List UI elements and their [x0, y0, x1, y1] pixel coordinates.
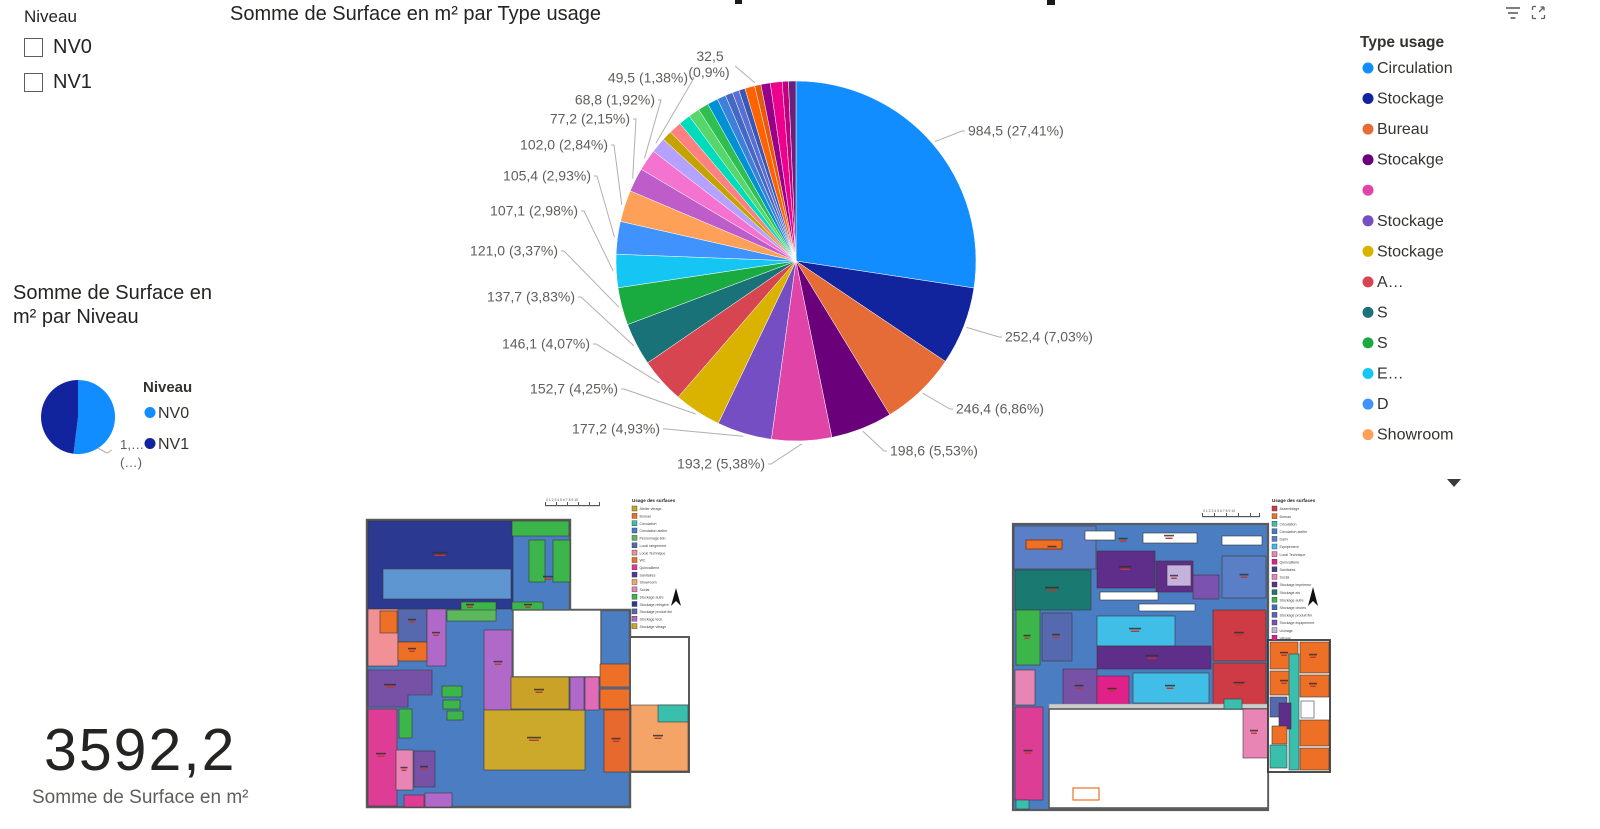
svg-text:Circulation atelier: Circulation atelier — [1280, 530, 1309, 534]
svg-text:Usinage: Usinage — [1280, 629, 1293, 633]
svg-text:Niveau: Niveau — [143, 379, 192, 396]
svg-text:105,4 (2,93%): 105,4 (2,93%) — [503, 168, 591, 184]
svg-text:Bureau: Bureau — [1377, 121, 1429, 138]
svg-text:246,4 (6,86%): 246,4 (6,86%) — [956, 401, 1044, 417]
svg-text:Stockage produit fini: Stockage produit fini — [1280, 614, 1313, 618]
svg-text:Social: Social — [640, 588, 650, 592]
svg-text:Showroom: Showroom — [1377, 427, 1453, 444]
svg-text:984,5 (27,41%): 984,5 (27,41%) — [968, 123, 1064, 139]
svg-text:32,5: 32,5 — [696, 48, 723, 64]
svg-text:193,2 (5,38%): 193,2 (5,38%) — [677, 456, 765, 472]
svg-text:Daim: Daim — [1280, 538, 1288, 542]
svg-text:Stockage: Stockage — [1377, 91, 1444, 108]
svg-text:WC: WC — [640, 559, 646, 563]
svg-text:137,7 (3,83%): 137,7 (3,83%) — [487, 289, 575, 305]
svg-text:177,2 (4,93%): 177,2 (4,93%) — [572, 421, 660, 437]
svg-text:Usage des surfaces: Usage des surfaces — [632, 498, 676, 503]
svg-text:121,0 (3,37%): 121,0 (3,37%) — [470, 243, 558, 259]
svg-text:252,4 (7,03%): 252,4 (7,03%) — [1005, 329, 1093, 345]
svg-text:Stockage: Stockage — [1377, 213, 1444, 230]
svg-text:Stockage chutes: Stockage chutes — [1280, 606, 1307, 610]
svg-text:(0,9%): (0,9%) — [688, 64, 729, 80]
svg-text:Showroom: Showroom — [640, 581, 657, 585]
svg-text:Type usage: Type usage — [1360, 34, 1445, 51]
svg-text:102,0 (2,84%): 102,0 (2,84%) — [520, 137, 608, 153]
svg-text:S: S — [1377, 304, 1388, 321]
svg-text:Stockage vitrage: Stockage vitrage — [640, 625, 667, 629]
svg-text:0 1 2 3 4 5 6 7 8 9: 0 1 2 3 4 5 6 7 8 9 10 — [546, 498, 578, 502]
svg-text:152,7 (4,25%): 152,7 (4,25%) — [530, 381, 618, 397]
svg-text:Bureau: Bureau — [1280, 515, 1292, 519]
svg-text:Sanitaires: Sanitaires — [1280, 568, 1296, 572]
svg-text:S: S — [1377, 335, 1388, 352]
svg-text:0 1 2 3 4 5 6 7 8 9: 0 1 2 3 4 5 6 7 8 9 10 — [1203, 509, 1235, 513]
svg-text:Quincaillerie: Quincaillerie — [640, 566, 660, 570]
svg-text:Stockage réfrigéré: Stockage réfrigéré — [640, 603, 669, 607]
svg-text:Equipement: Equipement — [1280, 545, 1299, 549]
svg-text:Social: Social — [1280, 576, 1290, 580]
svg-text:E…: E… — [1377, 366, 1404, 383]
svg-text:Bureau: Bureau — [640, 515, 652, 519]
svg-text:Assemblage: Assemblage — [1280, 507, 1300, 511]
svg-text:107,1 (2,98%): 107,1 (2,98%) — [490, 203, 578, 219]
svg-text:Personnage lidn: Personnage lidn — [640, 537, 666, 541]
svg-text:Vitrage: Vitrage — [1280, 636, 1291, 640]
svg-text:Stockage imprimeur: Stockage imprimeur — [1280, 583, 1313, 587]
svg-text:Atelier vitrage: Atelier vitrage — [640, 507, 662, 511]
svg-text:Local Technique: Local Technique — [640, 551, 666, 555]
svg-text:Stockage: Stockage — [1377, 243, 1444, 260]
svg-text:Stockage autre: Stockage autre — [1280, 598, 1304, 602]
svg-text:Usage des surfaces: Usage des surfaces — [1272, 498, 1316, 503]
svg-text:Quincaillerie: Quincaillerie — [1280, 560, 1300, 564]
svg-text:Stockage produit fini: Stockage produit fini — [640, 610, 673, 614]
svg-text:198,6 (5,53%): 198,6 (5,53%) — [890, 443, 978, 459]
svg-text:Local rangement: Local rangement — [640, 544, 667, 548]
svg-text:D: D — [1377, 396, 1389, 413]
svg-text:Stockage tech.: Stockage tech. — [640, 618, 664, 622]
svg-text:Stocakge: Stocakge — [1377, 152, 1444, 169]
svg-text:1,…: 1,… — [120, 437, 144, 452]
svg-text:Circulation: Circulation — [1377, 60, 1453, 77]
svg-text:A…: A… — [1377, 274, 1404, 291]
svg-text:NV1: NV1 — [158, 436, 189, 453]
svg-text:146,1 (4,07%): 146,1 (4,07%) — [502, 336, 590, 352]
svg-text:49,5 (1,38%): 49,5 (1,38%) — [608, 70, 688, 86]
svg-text:77,2 (2,15%): 77,2 (2,15%) — [550, 111, 630, 127]
svg-text:Circulation atelier: Circulation atelier — [640, 529, 669, 533]
svg-text:Local Technique: Local Technique — [1280, 553, 1306, 557]
svg-text:Circulation: Circulation — [1280, 522, 1297, 526]
svg-text:Stockage équipement: Stockage équipement — [1280, 621, 1315, 625]
svg-text:Circulation: Circulation — [640, 522, 657, 526]
svg-text:Sanitaires: Sanitaires — [640, 573, 656, 577]
svg-text:68,8 (1,92%): 68,8 (1,92%) — [575, 92, 655, 108]
svg-text:(…): (…) — [120, 455, 142, 470]
svg-text:NV0: NV0 — [158, 405, 189, 422]
svg-text:Stockage autre: Stockage autre — [640, 595, 664, 599]
svg-text:Stockage els: Stockage els — [1280, 591, 1301, 595]
